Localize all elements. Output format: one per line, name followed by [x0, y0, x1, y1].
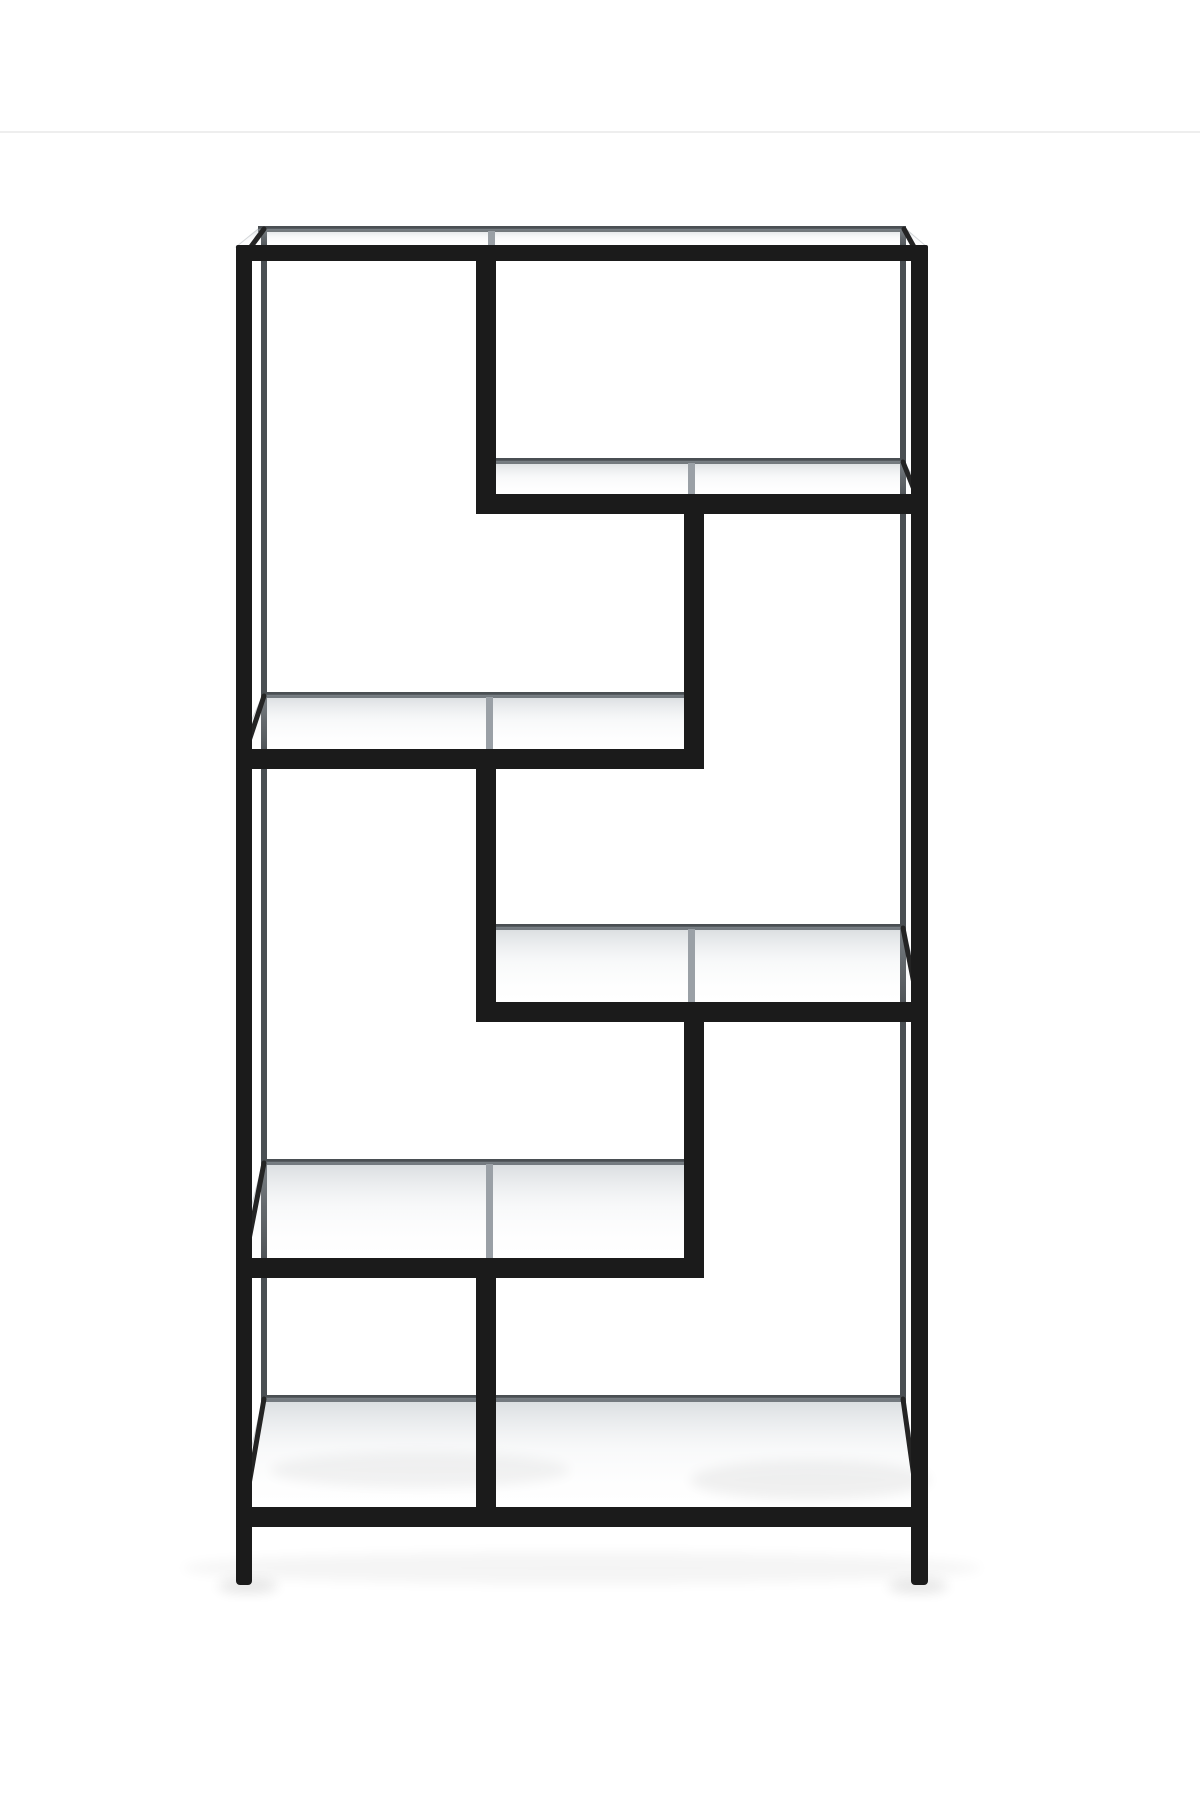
seen-post-divider-4 — [688, 929, 695, 1003]
shelf-b-rail — [236, 749, 704, 769]
divider-4 — [684, 1002, 704, 1278]
seen-post-divider-5 — [486, 1164, 493, 1259]
divider-2 — [684, 494, 704, 769]
divider-3 — [476, 749, 496, 1022]
glass-shelf-d — [237, 1162, 702, 1261]
floor-shadow-wide — [182, 1552, 982, 1584]
divider-5 — [476, 1258, 496, 1527]
glass-shelf-c — [478, 927, 927, 1005]
seen-post-divider-2 — [688, 463, 695, 495]
leg-left — [236, 245, 252, 1585]
glass-bottom — [237, 1398, 927, 1510]
background-layer — [0, 0, 1200, 1800]
background-seam-line — [0, 131, 1200, 133]
product-image — [0, 0, 1200, 1800]
shelf-d-rail — [236, 1258, 704, 1278]
leg-right — [911, 245, 928, 1585]
seen-post-divider-1 — [488, 231, 495, 246]
photo-canvas — [0, 0, 1200, 1800]
glass-shelf-b — [237, 695, 702, 752]
base-rail — [236, 1507, 928, 1527]
glass-top — [236, 229, 927, 247]
top-rail — [236, 245, 928, 261]
seen-post-divider-3 — [486, 697, 493, 750]
studio-background — [0, 0, 1200, 1800]
divider-1 — [476, 245, 496, 514]
back-leg-right — [900, 226, 906, 1401]
glass-shelf-a — [478, 461, 927, 497]
